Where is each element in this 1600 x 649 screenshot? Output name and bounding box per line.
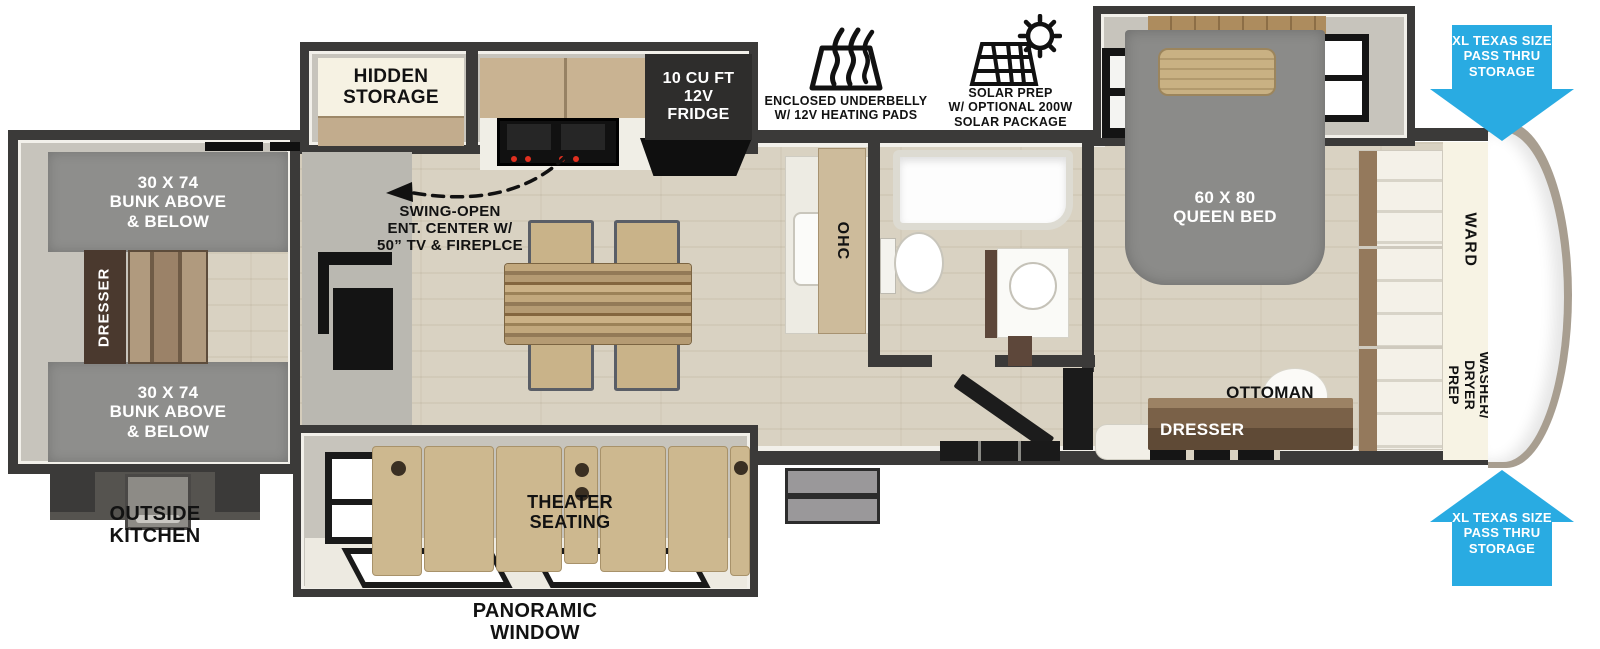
- top-wall: [750, 130, 1105, 143]
- pass-thru-bottom-label: XL TEXAS SIZE PASS THRU STORAGE: [1430, 510, 1574, 556]
- pass-thru-arrow-top: XL TEXAS SIZE PASS THRU STORAGE: [1430, 25, 1574, 143]
- hidden-storage-box: HIDDEN STORAGE: [318, 58, 464, 116]
- bathtub: [893, 150, 1073, 230]
- bunk-wardrobe: [128, 250, 208, 364]
- bunk-top: 30 X 74 BUNK ABOVE & BELOW: [48, 152, 288, 252]
- entry-door-frame: [1063, 368, 1093, 450]
- fridge-label: 10 CU FT 12V FRIDGE: [645, 54, 752, 140]
- outside-kitchen-label: OUTSIDE KITCHEN: [65, 503, 245, 548]
- vanity-sink: [1009, 262, 1057, 310]
- dining-chair: [614, 336, 680, 391]
- sofa-armrest-left: [372, 446, 422, 576]
- panoramic-window-label: PANORAMIC WINDOW: [420, 600, 650, 645]
- wardrobe-section: [1359, 249, 1442, 349]
- dining-table: [505, 264, 691, 344]
- stove-grate-2: [561, 124, 605, 150]
- bathroom-left-wall: [868, 142, 880, 367]
- solar-panel-icon: [962, 14, 1062, 90]
- toilet-bowl: [894, 232, 944, 294]
- underbelly-caption: ENCLOSED UNDERBELLY W/ 12V HEATING PADS: [762, 94, 930, 123]
- bunk-top-label: 30 X 74 BUNK ABOVE & BELOW: [48, 152, 288, 252]
- fridge-box: 10 CU FT 12V FRIDGE: [645, 54, 752, 140]
- top-wall-trim: [750, 143, 1105, 147]
- vanity-cabinet-strip: [985, 250, 997, 338]
- outside-entry-steps-2: [785, 496, 880, 524]
- bathroom-right-wall: [1082, 142, 1094, 372]
- hidden-storage-cabinet: [318, 116, 464, 146]
- tv-50in: [333, 288, 393, 370]
- ohc-label: OHC: [833, 222, 851, 261]
- hidden-storage-label: HIDDEN STORAGE: [318, 58, 464, 116]
- sofa-armrest-right: [730, 446, 750, 576]
- queen-bed: 60 X 80 QUEEN BED: [1125, 30, 1325, 285]
- solar-caption: SOLAR PREP W/ OPTIONAL 200W SOLAR PACKAG…: [928, 86, 1093, 129]
- bunk-dresser: DRESSER: [84, 250, 126, 364]
- kitchen-upper-cabinets: [480, 58, 652, 118]
- vanity-lower-cabinet: [1008, 336, 1032, 366]
- bunk-dresser-label: DRESSER: [97, 267, 114, 347]
- tv-bracket-v: [318, 252, 329, 334]
- washer-dryer-label: WASHER/ DRYER PREP: [1446, 351, 1492, 418]
- swing-open-arrow: [378, 148, 573, 210]
- fridge-front: [640, 138, 752, 176]
- ohc-cabinet: OHC: [818, 148, 866, 334]
- bathroom-bottom-wall-left: [868, 355, 932, 367]
- wardrobe-section: [1359, 349, 1442, 451]
- entry-step-well: [940, 441, 1060, 461]
- queen-bed-label: 60 X 80 QUEEN BED: [1125, 188, 1325, 226]
- floorplan-canvas: 30 X 74 BUNK ABOVE & BELOW 30 X 74 BUNK …: [0, 0, 1600, 649]
- cupholder: [734, 461, 748, 475]
- heating-pads-icon: [800, 22, 892, 94]
- wardrobe-shelves: [1358, 150, 1443, 450]
- pass-thru-arrow-bottom: XL TEXAS SIZE PASS THRU STORAGE: [1430, 470, 1574, 588]
- pass-thru-top-label: XL TEXAS SIZE PASS THRU STORAGE: [1430, 33, 1574, 79]
- dining-chair: [528, 336, 594, 391]
- bunk-bottom-label: 30 X 74 BUNK ABOVE & BELOW: [48, 362, 288, 462]
- bunk-bottom: 30 X 74 BUNK ABOVE & BELOW: [48, 362, 288, 462]
- stove-knob: [573, 156, 579, 162]
- wardrobe-section: [1359, 151, 1442, 249]
- ottoman-label: OTTOMAN: [1180, 383, 1360, 402]
- arrow-head-down: [1430, 89, 1574, 141]
- bunk-room-window: [205, 142, 263, 151]
- sofa-seat: [668, 446, 728, 572]
- stove-grate: [507, 124, 551, 150]
- cupholder: [391, 461, 406, 476]
- kitchen-slide-divider: [466, 44, 478, 152]
- cupholder: [575, 463, 589, 477]
- theater-seating-label: THEATER SEATING: [470, 492, 670, 532]
- bedroom-dresser-label: DRESSER: [1160, 420, 1280, 439]
- bedroom-dresser: DRESSER: [1148, 398, 1353, 450]
- window-crossbar: [332, 499, 376, 505]
- outside-entry-steps: [785, 468, 880, 496]
- bed-pillow: [1158, 48, 1276, 96]
- ward-label: WARD: [1460, 213, 1478, 268]
